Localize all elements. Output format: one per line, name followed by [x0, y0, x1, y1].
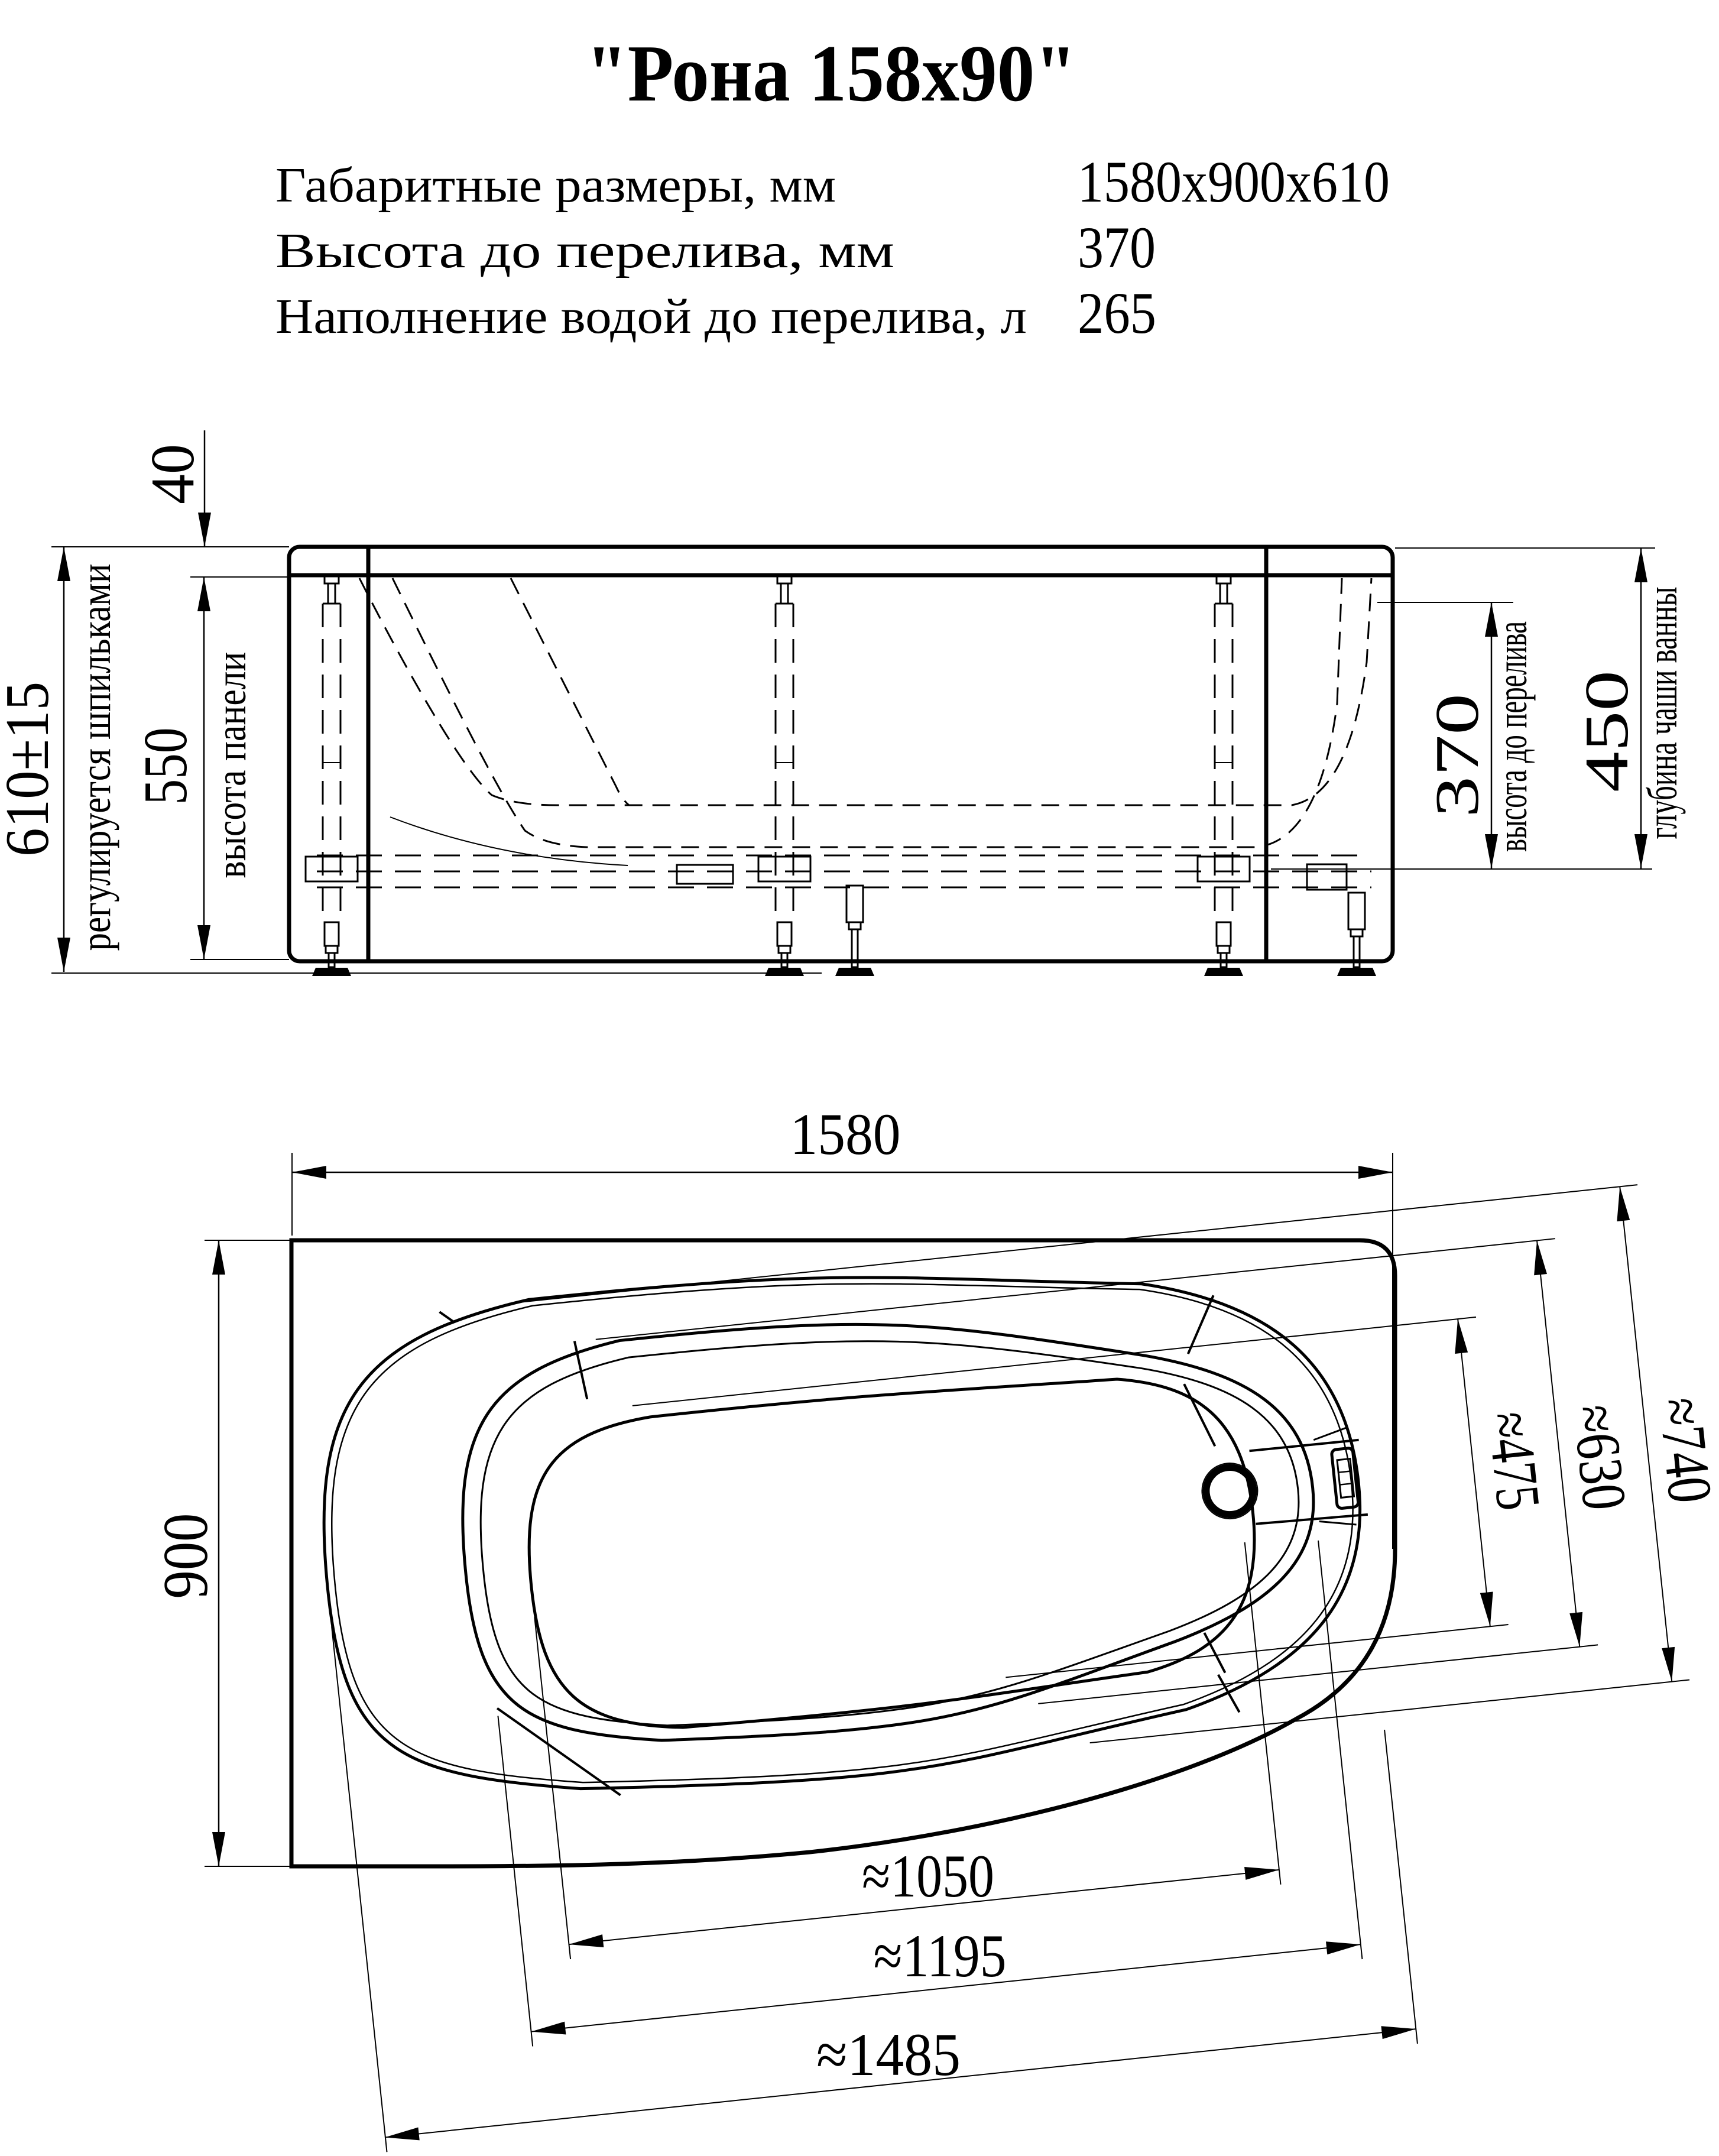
svg-text:Высота до перелива, мм: Высота до перелива, мм	[275, 223, 894, 278]
svg-text:Габаритные размеры, мм: Габаритные размеры, мм	[275, 158, 836, 213]
svg-text:≈475: ≈475	[1474, 1409, 1553, 1513]
svg-text:≈630: ≈630	[1560, 1402, 1640, 1513]
svg-text:регулируется шпильками: регулируется шпильками	[72, 564, 119, 951]
svg-text:450: 450	[1572, 670, 1641, 792]
svg-text:высота до перелива: высота до перелива	[1488, 621, 1536, 852]
svg-text:900: 900	[151, 1513, 221, 1599]
svg-text:265: 265	[1078, 280, 1156, 346]
svg-text:≈1050: ≈1050	[862, 1843, 994, 1910]
svg-text:≈1195: ≈1195	[874, 1922, 1007, 1990]
svg-text:Наполнение водой до перелива,: Наполнение водой до перелива, л	[275, 289, 1027, 344]
svg-text:370: 370	[1078, 215, 1156, 280]
svg-text:550: 550	[131, 728, 200, 805]
svg-text:глубина чаши ванны: глубина чаши ванны	[1639, 587, 1686, 839]
svg-text:≈740: ≈740	[1646, 1395, 1719, 1506]
svg-text:610±15: 610±15	[0, 682, 61, 857]
svg-text:высота панели: высота панели	[207, 652, 255, 878]
svg-text:370: 370	[1422, 693, 1491, 818]
svg-text:1580: 1580	[790, 1101, 901, 1167]
svg-text:"Рона 158х90": "Рона 158х90"	[586, 28, 1076, 118]
svg-text:1580х900х610: 1580х900х610	[1078, 149, 1390, 215]
svg-text:40: 40	[138, 444, 207, 504]
svg-text:≈1485: ≈1485	[816, 2021, 961, 2089]
